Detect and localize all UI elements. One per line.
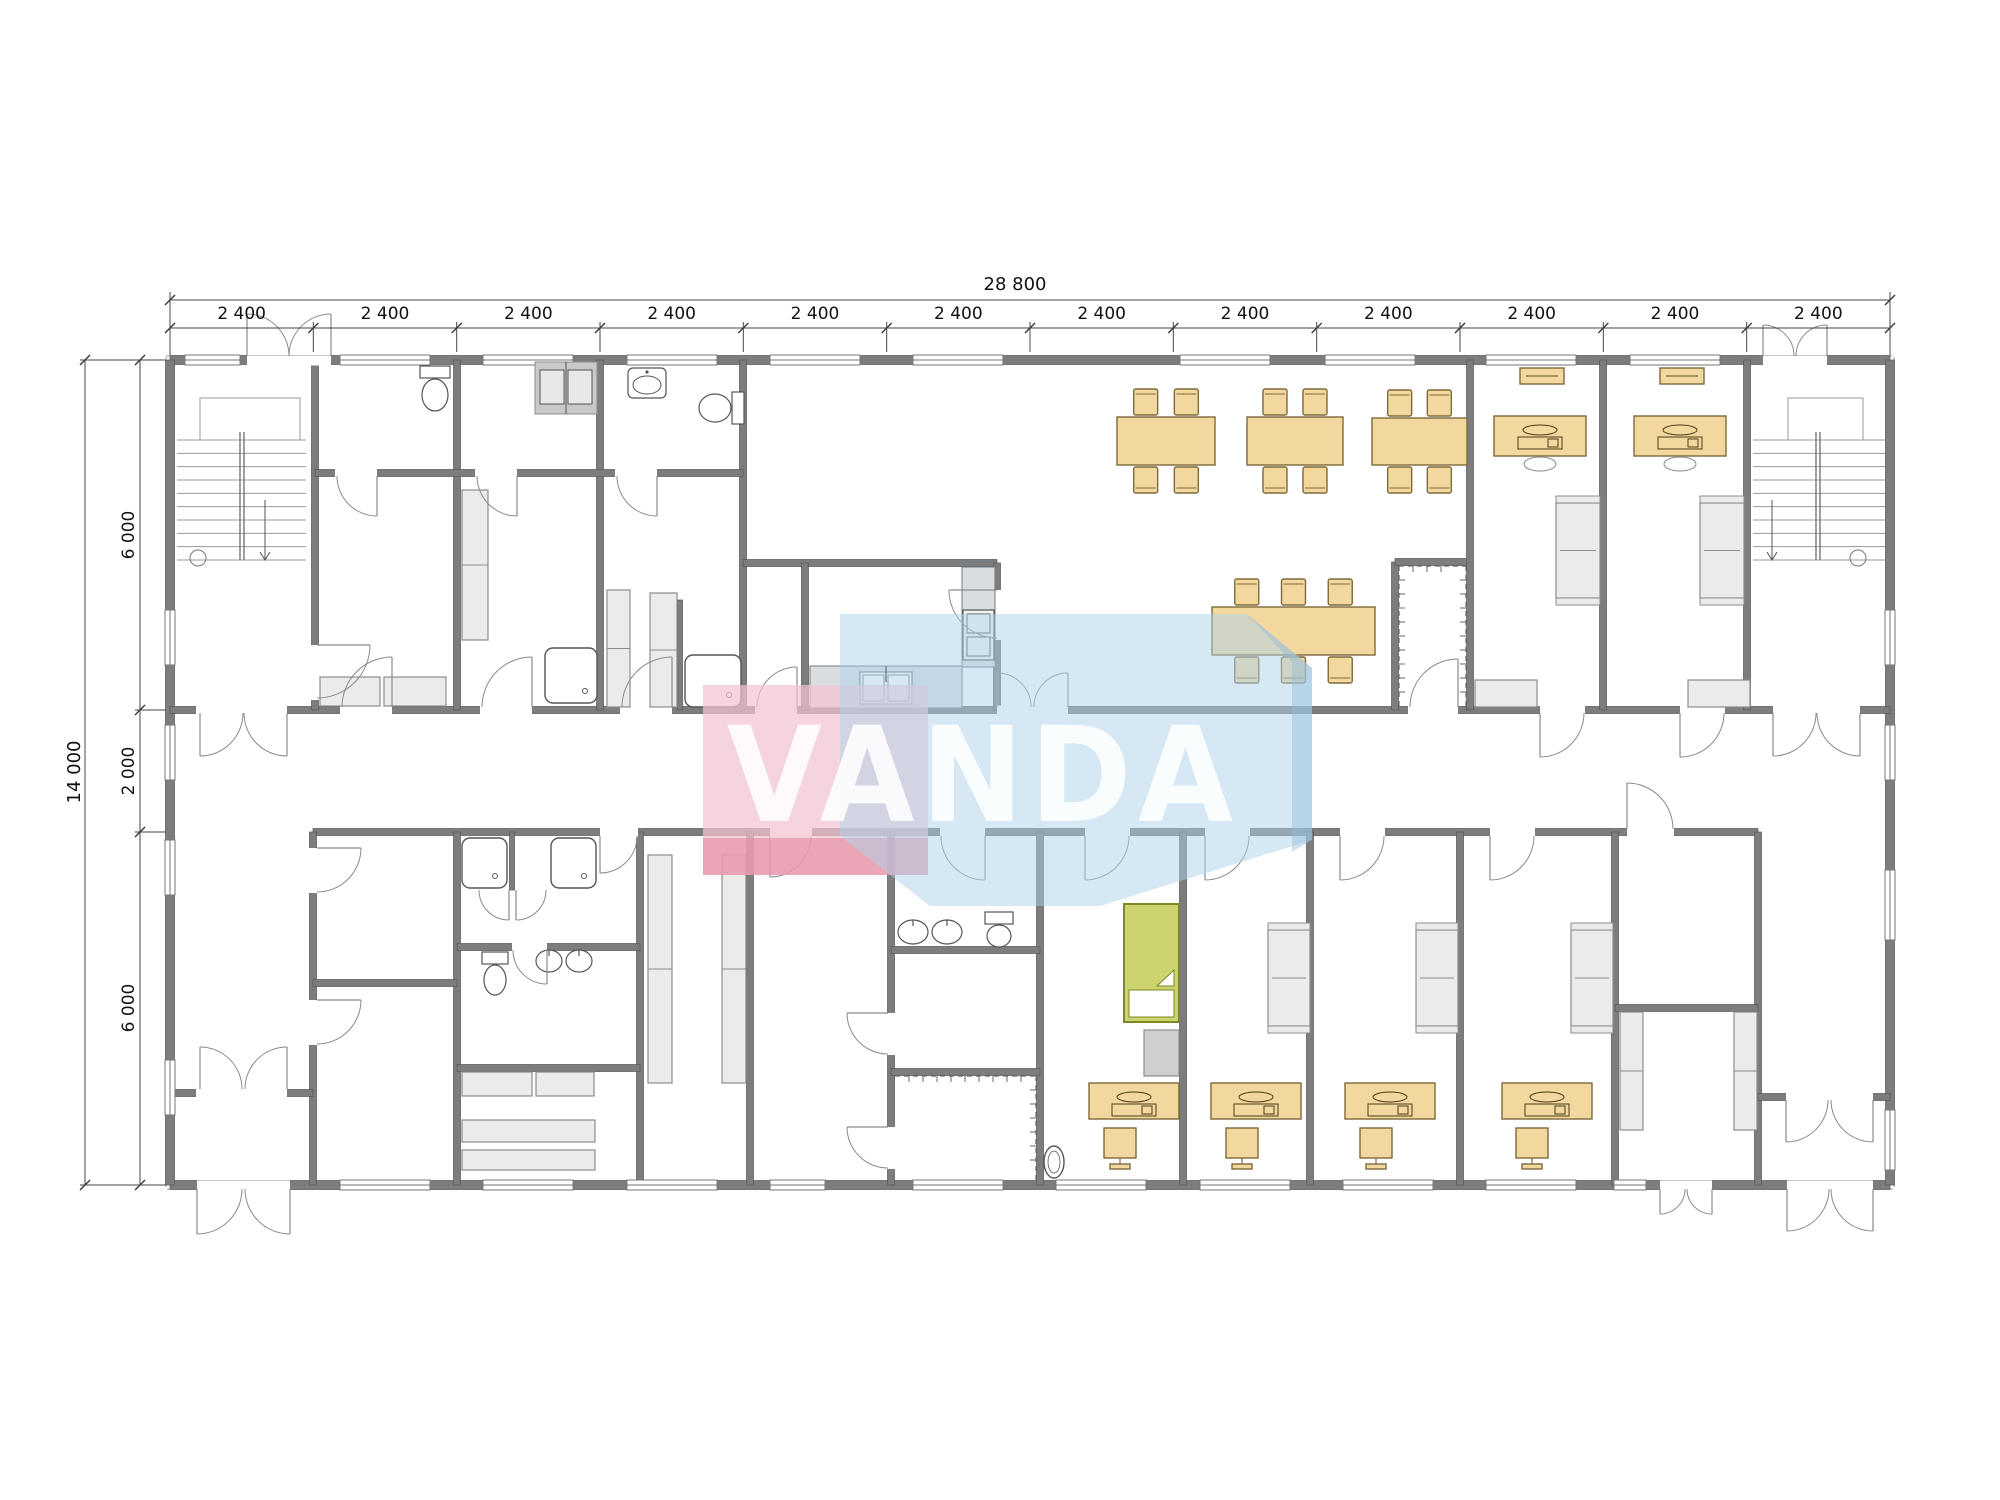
- door: [197, 1189, 242, 1234]
- sofa-arm: [1416, 1026, 1458, 1033]
- desk-chair: [1664, 457, 1696, 471]
- chair: [1174, 467, 1198, 493]
- shower-stall: [462, 838, 507, 888]
- stair-start-circle: [1850, 550, 1866, 566]
- door-swing-arc: [1660, 1189, 1685, 1214]
- locker-column: [650, 593, 677, 707]
- wall: [454, 473, 461, 710]
- door-opening: [309, 848, 319, 893]
- door: [1410, 659, 1458, 707]
- table-top: [1247, 417, 1343, 465]
- floor-plan-page: 28 8002 4002 4002 4002 4002 4002 4002 40…: [0, 0, 2000, 1500]
- sofa-arm: [1571, 923, 1613, 930]
- locker-column: [722, 855, 746, 1083]
- door: [317, 848, 361, 892]
- chair: [1282, 579, 1306, 605]
- door-opening: [887, 1127, 897, 1169]
- monitor-table: [1104, 1128, 1136, 1169]
- door: [245, 1047, 287, 1089]
- chair: [1134, 467, 1158, 493]
- sofa: [1571, 923, 1613, 1033]
- door-swing-arc: [617, 476, 657, 516]
- wall: [457, 1065, 640, 1072]
- wall: [1615, 1005, 1758, 1012]
- door-swing-arc: [1787, 1189, 1829, 1231]
- locker-column: [607, 590, 630, 707]
- wall: [454, 832, 461, 1185]
- basin-tap: [645, 370, 648, 373]
- dimension-label: 2 400: [934, 304, 983, 324]
- stair-start-circle: [190, 550, 206, 566]
- nightstand-body: [1144, 1030, 1179, 1076]
- desk-chair: [1524, 457, 1556, 471]
- door: [317, 1000, 361, 1044]
- dining-table-4seat: [1247, 389, 1343, 493]
- door-swing-arc: [1340, 836, 1384, 880]
- door-swing-arc: [197, 1189, 242, 1234]
- chair: [1303, 389, 1327, 415]
- monitor-table: [1360, 1128, 1392, 1169]
- toilet: [420, 366, 450, 411]
- cabinet-body: [1475, 680, 1537, 707]
- toilet: [985, 912, 1013, 947]
- cabinet-body: [1688, 680, 1750, 707]
- dimension-label: 2 400: [504, 304, 553, 324]
- door: [1540, 713, 1584, 757]
- sofa: [1700, 496, 1744, 605]
- locker-column: [1734, 1012, 1757, 1130]
- door-opening: [1787, 1181, 1873, 1191]
- desk-top: [1494, 416, 1586, 456]
- table-top: [1372, 418, 1467, 465]
- wall: [597, 360, 604, 473]
- bench: [462, 1072, 532, 1096]
- dimension-label: 6 000: [119, 511, 139, 560]
- door-opening: [247, 356, 331, 366]
- wall: [1180, 832, 1187, 1185]
- toilet-cistern: [482, 952, 508, 964]
- door-swing-arc: [1687, 1189, 1712, 1214]
- door-opening: [309, 1000, 319, 1045]
- wall: [1392, 562, 1399, 710]
- door-opening: [600, 828, 638, 838]
- wall: [510, 832, 515, 890]
- wall: [678, 600, 683, 710]
- toilet-cistern: [732, 392, 744, 424]
- hall-cabinet: [384, 677, 446, 706]
- door-swing-arc: [289, 314, 331, 356]
- bench: [536, 1072, 594, 1096]
- desk-top: [1502, 1083, 1592, 1119]
- door-opening: [1786, 1093, 1873, 1103]
- door-swing-arc: [847, 1127, 888, 1168]
- washbasin: [628, 368, 666, 398]
- table-top: [1117, 417, 1215, 465]
- door-swing-arc: [600, 836, 637, 873]
- dimension-label: 2 400: [1651, 304, 1700, 324]
- door: [1817, 713, 1860, 756]
- sofa-arm: [1556, 496, 1600, 503]
- shower-stall: [551, 838, 596, 888]
- toilet-bowl: [422, 379, 448, 411]
- monitor-table: [1226, 1128, 1258, 1169]
- mop-sink: [1044, 1146, 1064, 1178]
- toilet-bowl: [699, 394, 731, 422]
- wall: [454, 360, 461, 473]
- monitor-base: [1366, 1164, 1386, 1169]
- door: [479, 890, 509, 920]
- stair-landing: [1788, 398, 1863, 440]
- wall: [1395, 559, 1470, 566]
- door: [337, 476, 377, 516]
- chair: [1388, 390, 1412, 416]
- door-opening: [197, 1181, 290, 1191]
- monitor-base: [1522, 1164, 1542, 1169]
- double-sink-unit: [535, 362, 597, 414]
- door: [1490, 836, 1534, 880]
- watermark-text: VANDA: [707, 698, 1258, 853]
- door-swing-arc: [1490, 836, 1534, 880]
- wall: [743, 560, 997, 567]
- office-desk: [1089, 1083, 1179, 1119]
- door: [1680, 713, 1724, 757]
- door: [1787, 1189, 1829, 1231]
- door-swing-arc: [1410, 659, 1458, 707]
- monitor-base: [1110, 1164, 1130, 1169]
- door-swing-arc: [1831, 1100, 1873, 1142]
- door-swing-arc: [482, 657, 532, 707]
- bed-pillow: [1129, 990, 1174, 1017]
- door-opening: [1763, 356, 1827, 366]
- toilet: [482, 952, 508, 995]
- door: [200, 713, 243, 756]
- shower-tray: [551, 838, 596, 888]
- door-swing-arc: [245, 1047, 287, 1089]
- door-swing-arc: [1763, 325, 1794, 356]
- dimension-label: 2 400: [361, 304, 410, 324]
- dimension-label: 2 400: [1221, 304, 1270, 324]
- door-opening: [340, 706, 392, 716]
- office-desk: [1494, 416, 1586, 471]
- shower-tray: [545, 648, 597, 703]
- door-opening: [887, 1013, 897, 1055]
- wall: [315, 470, 743, 477]
- sofa-arm: [1700, 598, 1744, 605]
- wall: [891, 1069, 1040, 1076]
- chair: [1427, 467, 1451, 493]
- door-opening: [1660, 1181, 1712, 1191]
- sofa-arm: [1416, 923, 1458, 930]
- washbasin-small: [932, 920, 962, 944]
- door-swing-arc: [1773, 713, 1816, 756]
- door-opening: [311, 645, 321, 700]
- staircase: [177, 398, 306, 566]
- dimension-label: 2 400: [1507, 304, 1556, 324]
- dimension-label: 2 400: [1077, 304, 1126, 324]
- door-swing-arc: [516, 890, 546, 920]
- sofa-arm: [1700, 496, 1744, 503]
- shower-tray: [545, 648, 597, 703]
- chair: [1303, 467, 1327, 493]
- dimension-label: 6 000: [119, 984, 139, 1033]
- sofa: [1268, 923, 1310, 1033]
- door-opening: [196, 1089, 287, 1099]
- door-swing-arc: [1817, 713, 1860, 756]
- locker-column: [1620, 1012, 1643, 1130]
- monitor-shelf: [1660, 368, 1704, 384]
- chair: [1263, 389, 1287, 415]
- stair-landing: [200, 398, 300, 440]
- chair: [1328, 579, 1352, 605]
- door-swing-arc: [337, 476, 377, 516]
- door: [1773, 713, 1816, 756]
- chair: [1235, 579, 1259, 605]
- dimension-label: 2 400: [217, 304, 266, 324]
- toilet-cistern: [420, 366, 450, 378]
- door: [1340, 836, 1384, 880]
- desk-top: [1634, 416, 1726, 456]
- desk-top: [1345, 1083, 1435, 1119]
- sofa: [1416, 923, 1458, 1033]
- sofa-arm: [1556, 598, 1600, 605]
- door-opening: [480, 706, 532, 716]
- door-opening: [1540, 706, 1585, 716]
- wall: [1467, 360, 1474, 710]
- low-cabinet: [1688, 680, 1750, 707]
- desk-top: [1211, 1083, 1301, 1119]
- dimension-label: 2 400: [1364, 304, 1413, 324]
- dining-table-4seat: [1117, 389, 1215, 493]
- door-swing-arc: [1786, 1100, 1828, 1142]
- door-opening: [512, 943, 547, 953]
- door: [847, 1013, 888, 1054]
- cabinet-body: [536, 1072, 594, 1096]
- cabinet-body: [462, 1150, 595, 1170]
- bench: [462, 1150, 595, 1170]
- toilet: [699, 392, 744, 424]
- dining-table-4seat: [1372, 390, 1467, 493]
- cabinet-body: [320, 677, 380, 706]
- wall: [891, 947, 1040, 954]
- door-swing-arc: [200, 713, 243, 756]
- chair: [1427, 390, 1451, 416]
- door-swing-arc: [1831, 1189, 1873, 1231]
- door-swing-arc: [847, 1013, 888, 1054]
- door-swing-arc: [244, 713, 287, 756]
- door-swing-arc: [245, 1189, 290, 1234]
- door: [244, 713, 287, 756]
- sofa-arm: [1571, 1026, 1613, 1033]
- dimension-label: 28 800: [984, 274, 1047, 295]
- chair: [1388, 467, 1412, 493]
- chair: [1328, 657, 1352, 683]
- dimension-label: 14 000: [64, 741, 85, 804]
- door-swing-arc: [1627, 783, 1673, 829]
- monitor-shelf: [1520, 368, 1564, 384]
- wall: [313, 980, 457, 987]
- door: [482, 657, 532, 707]
- chair: [1263, 467, 1287, 493]
- door: [1687, 1189, 1712, 1214]
- bedside-cabinet: [1144, 1030, 1179, 1076]
- toilet-cistern: [985, 912, 1013, 924]
- toilet-bowl: [484, 965, 506, 995]
- door-opening: [196, 706, 287, 716]
- sink-right: [568, 370, 592, 404]
- washbasin-small: [536, 950, 562, 972]
- door-opening: [335, 469, 377, 479]
- door-swing-arc: [1796, 325, 1827, 356]
- door: [245, 1189, 290, 1234]
- door: [1831, 1189, 1873, 1231]
- door: [1627, 783, 1673, 829]
- office-desk: [1502, 1083, 1592, 1119]
- sofa: [1556, 496, 1600, 605]
- door-opening: [1627, 828, 1674, 838]
- door: [200, 1047, 242, 1089]
- chair: [1174, 389, 1198, 415]
- monitor-table: [1516, 1128, 1548, 1169]
- door: [1831, 1100, 1873, 1142]
- door-swing-arc: [317, 1000, 361, 1044]
- sink-left: [540, 370, 564, 404]
- door-swing-arc: [479, 890, 509, 920]
- cabinet-body: [462, 1072, 532, 1096]
- bench: [462, 1120, 595, 1142]
- dimension-label: 2 400: [791, 304, 840, 324]
- monitor-screen: [1516, 1128, 1548, 1158]
- hall-cabinet: [320, 677, 380, 706]
- door: [1763, 325, 1794, 356]
- door: [1660, 1189, 1685, 1214]
- door-opening: [1490, 828, 1535, 838]
- desk-top: [1089, 1083, 1179, 1119]
- wall: [637, 832, 644, 1185]
- door-swing-arc: [1680, 713, 1724, 757]
- door-swing-arc: [1540, 713, 1584, 757]
- shower-tray: [462, 838, 507, 888]
- dimension-label: 2 000: [119, 747, 139, 796]
- washbasin-small: [566, 950, 592, 972]
- dimension-label: 2 400: [647, 304, 696, 324]
- locker-column: [462, 490, 488, 640]
- door: [1796, 325, 1827, 356]
- monitor-screen: [1226, 1128, 1258, 1158]
- door-opening: [475, 469, 517, 479]
- cabinet-body: [384, 677, 446, 706]
- office-desk: [1634, 416, 1726, 471]
- office-desk: [1211, 1083, 1301, 1119]
- door: [847, 1127, 888, 1168]
- dimension-label: 2 400: [1794, 304, 1843, 324]
- door-opening: [1340, 828, 1385, 838]
- toilet-bowl: [987, 925, 1011, 947]
- door: [1786, 1100, 1828, 1142]
- door-opening: [615, 469, 657, 479]
- office-desk: [1345, 1083, 1435, 1119]
- sick-bed: [1124, 904, 1179, 1022]
- cabinet-body: [462, 1120, 595, 1142]
- monitor-base: [1232, 1164, 1252, 1169]
- locker-column: [648, 855, 672, 1083]
- low-cabinet: [1475, 680, 1537, 707]
- door-opening: [1408, 706, 1458, 716]
- monitor-screen: [1360, 1128, 1392, 1158]
- sofa-arm: [1268, 1026, 1310, 1033]
- door-swing-arc: [317, 848, 361, 892]
- door-swing-arc: [200, 1047, 242, 1089]
- chair: [1134, 389, 1158, 415]
- monitor-screen: [1104, 1128, 1136, 1158]
- door-opening: [1773, 706, 1860, 716]
- staircase: [1753, 398, 1885, 566]
- door: [600, 836, 637, 873]
- door: [289, 314, 331, 356]
- sofa-arm: [1268, 923, 1310, 930]
- wall: [747, 832, 754, 1185]
- washbasin-small: [898, 920, 928, 944]
- door: [516, 890, 546, 920]
- door: [617, 476, 657, 516]
- stairs-layer: [177, 398, 1885, 566]
